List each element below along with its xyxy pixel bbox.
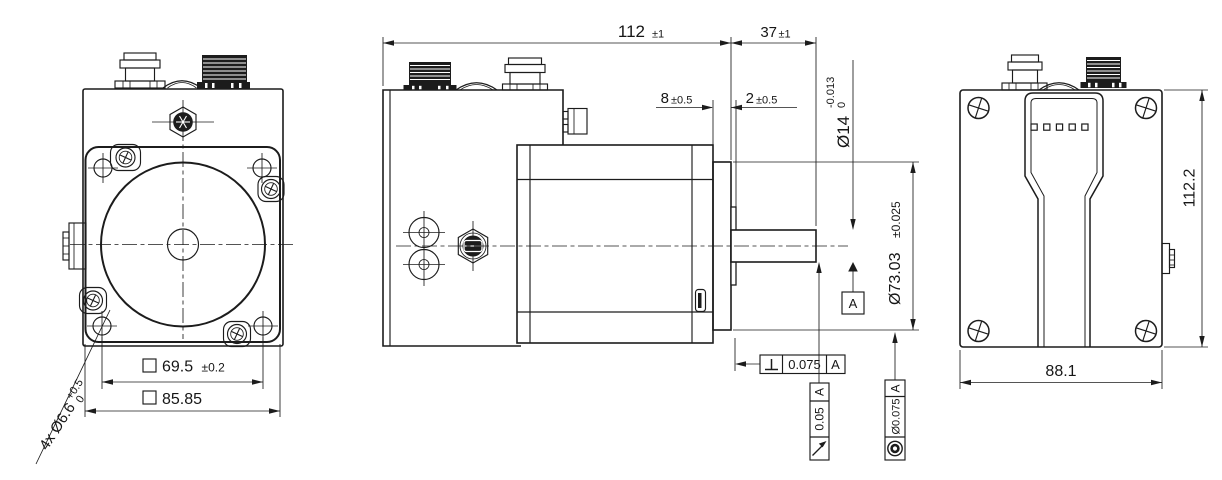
front-view: 69.5 ±0.2 85.85 4x Ø6.6 +0.5 0 [34,53,296,464]
dimension-shaft-dia: Ø14 0 -0.013 [825,60,856,230]
pilot-depth-tol: ±0.5 [671,95,692,107]
adjustment-ports-icon [403,211,445,286]
perpendicularity-tolerance: 0.075 [788,357,821,372]
perpendicularity-datum: A [831,357,840,372]
shaft-end-value: 37 [760,24,777,41]
housing-screw-icon [966,95,1159,343]
m12-connector-threaded-icon [1081,57,1127,88]
spacer-value: 2 [746,90,754,107]
spacer-tol: ±0.5 [756,95,777,107]
mounting-hole-icon [87,153,278,341]
back-view: 112.2 88.1 [960,55,1208,389]
rear-height-value: 112.2 [1182,168,1199,207]
bolt-circle-value: 69.5 [162,359,193,376]
m12-connector-plain-icon [1002,55,1047,90]
circular-runout-icon [813,441,827,456]
motor-technical-drawing: 69.5 ±0.2 85.85 4x Ø6.6 +0.5 0 [0,0,1222,480]
shaft-dia-value: Ø14 [834,116,853,148]
shaft-end-tol: ±1 [779,29,791,41]
pilot-depth-value: 8 [661,90,669,107]
dimension-overall-length: 112 ±1 [383,22,731,160]
led-indicator-icon [1031,124,1088,130]
m12-connector-threaded-icon [197,55,250,89]
rear-width-value: 88.1 [1045,363,1076,380]
holes-note-label: 4x Ø6.6 [36,400,79,453]
flange-clip-icon [696,290,706,312]
dimension-flange-size: 85.85 [85,344,280,417]
square-symbol-icon [143,391,156,404]
fcf-perpendicularity: 0.075 A [735,338,845,374]
concentricity-tolerance: Ø0.075 [891,398,903,434]
m12-connector-plain-icon [115,53,165,88]
flange-screw-icon [80,145,285,347]
shaft-dia-tol-lower: -0.013 [825,77,837,108]
dimension-shaft-end: 37 ±1 [731,24,816,226]
drawing-canvas: 69.5 ±0.2 85.85 4x Ø6.6 +0.5 0 [0,0,1222,480]
set-screw-knob-icon [563,109,587,135]
m12-connector-plain-icon [503,58,548,90]
dimension-bolt-circle: 69.5 ±0.2 [102,337,263,389]
pilot-dia-value: Ø73.03 [887,252,904,305]
pilot-dia-tol: ±0.025 [889,201,903,238]
overall-length-value: 112 [618,22,645,41]
dimension-pilot-depth: 8 ±0.5 [656,90,713,191]
dimension-rear-height: 112.2 [1164,90,1208,347]
datum-flag: A [842,262,864,314]
gasket-dome-icon [456,83,497,90]
gasket-dome-icon [1039,83,1079,90]
side-view: 112 ±1 37 ±1 8 ±0.5 2 ±0.5 [383,22,919,460]
motor-body-outline [517,145,713,343]
datum-label: A [849,296,858,311]
runout-tolerance: 0.05 [813,407,827,431]
dimension-rear-width: 88.1 [960,350,1162,389]
bolt-circle-tol: ±0.2 [202,361,226,375]
fcf-concentricity: A Ø0.075 [885,332,905,460]
mounting-holes-note: 4x Ø6.6 +0.5 0 [34,310,110,464]
side-clip-icon [1162,244,1175,274]
shaft-dia-tol-upper: 0 [836,102,848,108]
concentricity-icon [888,441,902,455]
concentricity-datum: A [889,384,903,392]
square-symbol-icon [143,359,156,372]
flange-size-value: 85.85 [162,391,202,408]
controller-housing-outline [383,90,563,346]
perpendicularity-icon [765,359,778,370]
dimension-spacer: 2 ±0.5 [731,90,797,225]
m12-connector-threaded-icon [404,62,457,91]
rear-housing-outline [960,90,1162,347]
gasket-dome-icon [163,81,201,88]
overall-length-tol: ±1 [652,29,664,41]
runout-datum: A [813,388,827,396]
led-panel [1025,93,1103,347]
